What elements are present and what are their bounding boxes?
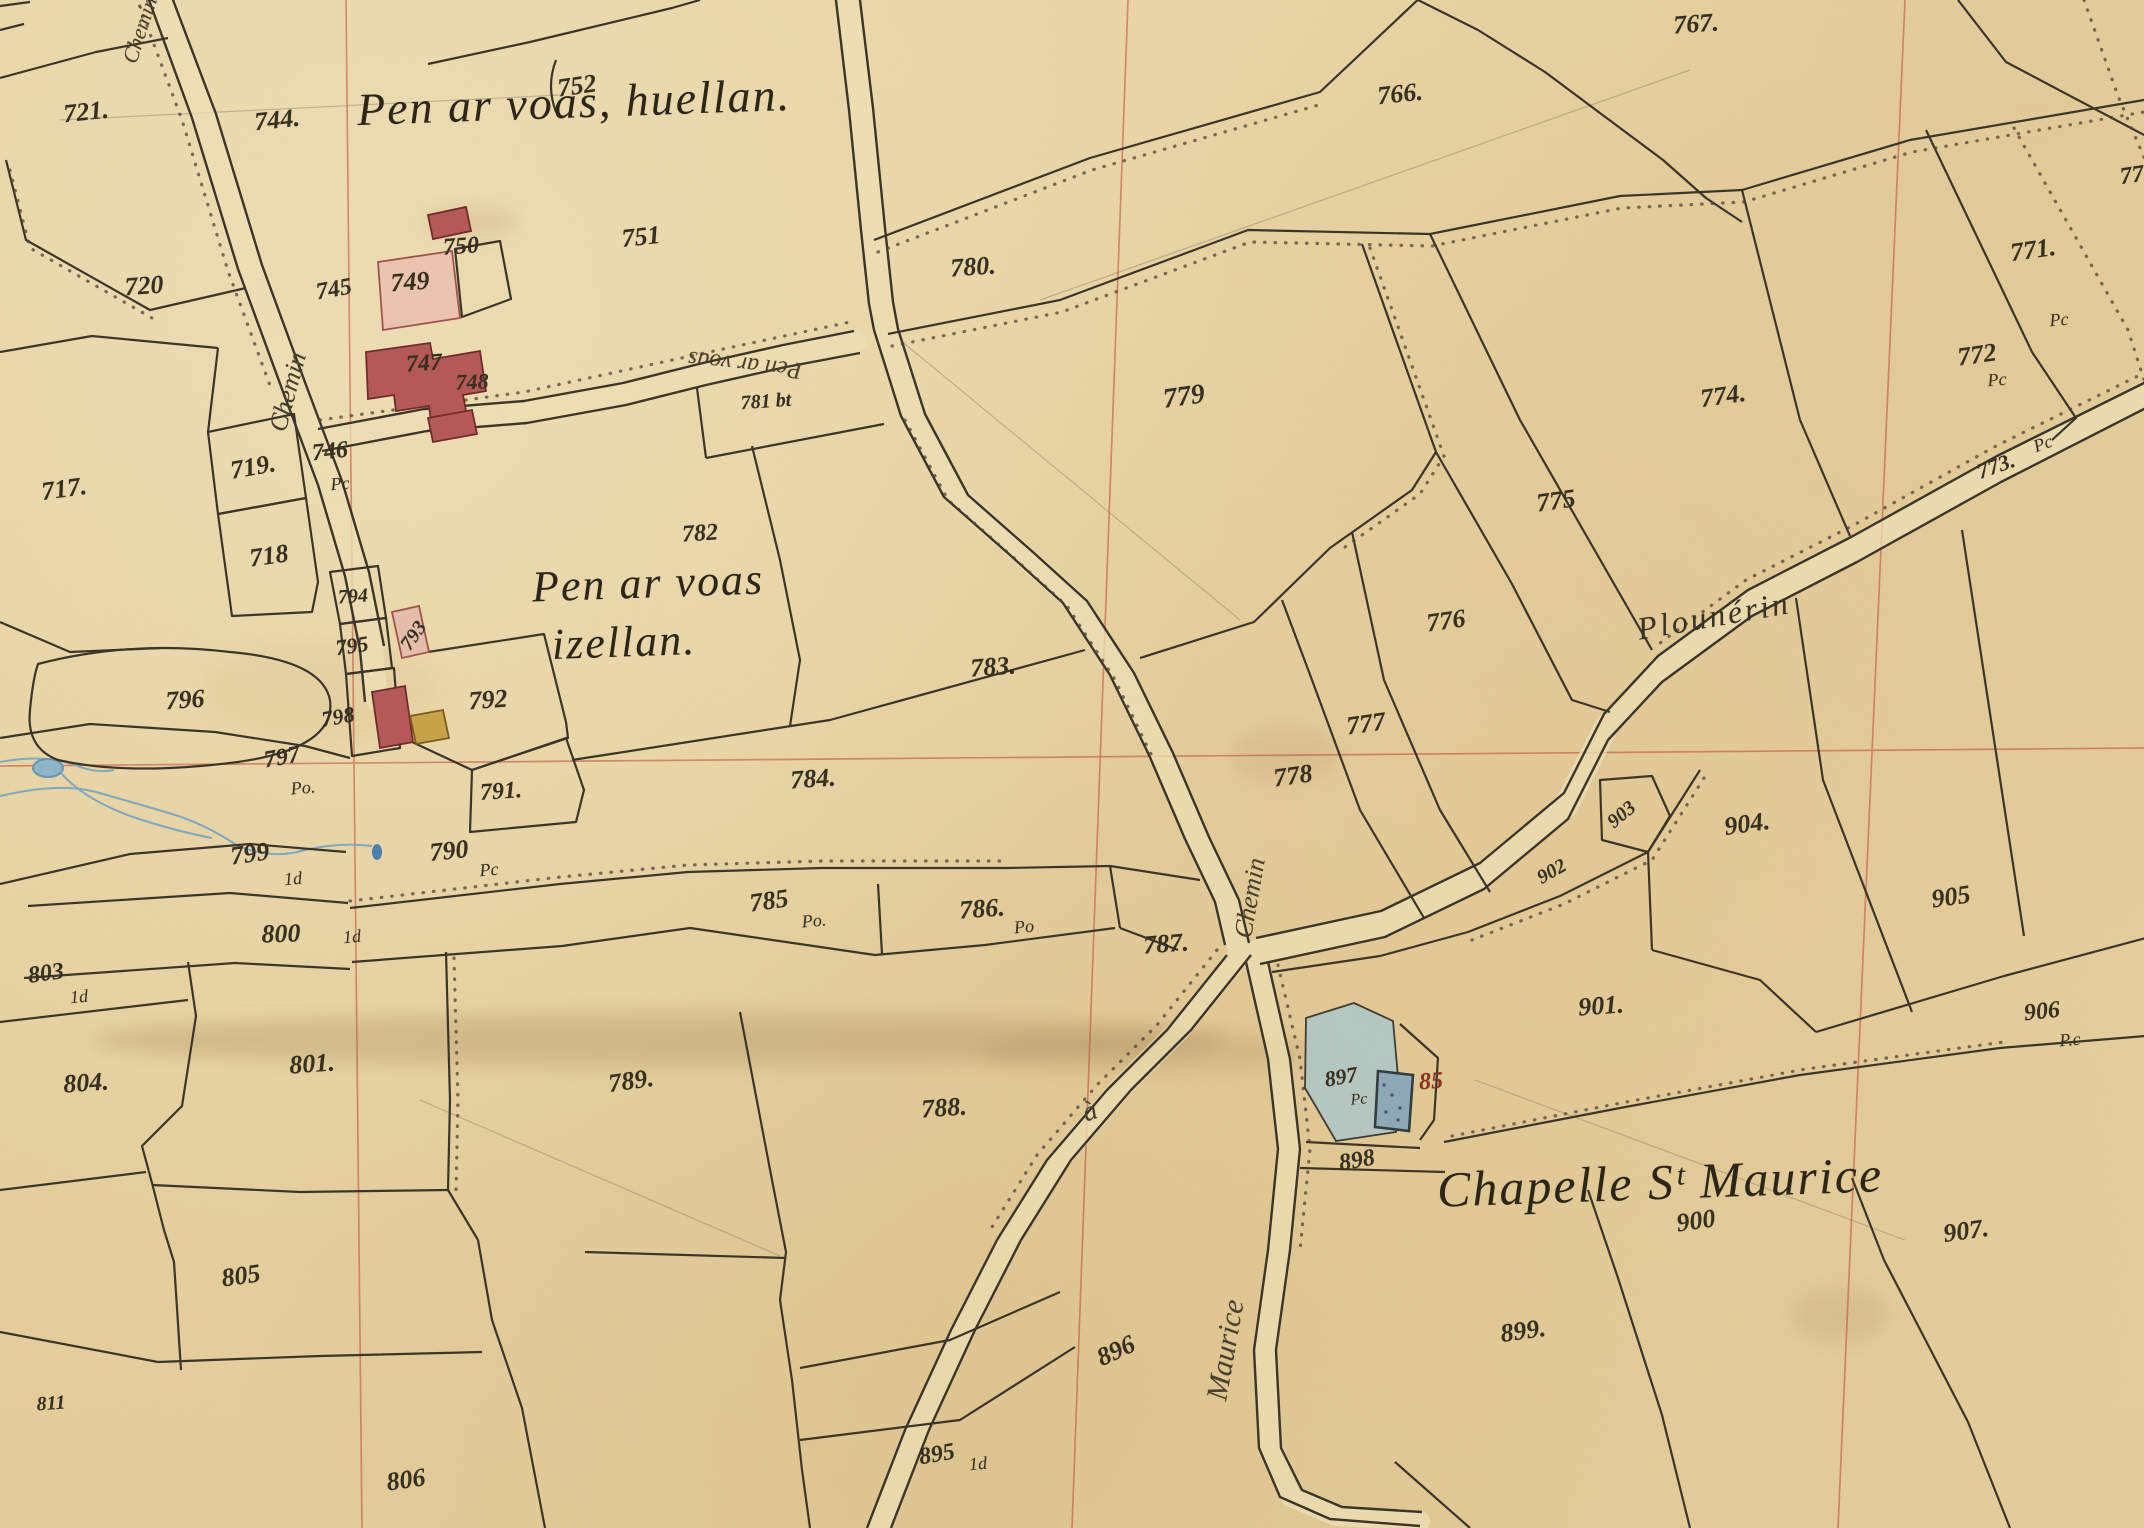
map-drawing bbox=[0, 0, 2144, 1528]
cadastral-map-canvas[interactable]: Pen ar voas, huellan.Pen ar voasizellan.… bbox=[0, 0, 2144, 1528]
paper-grain bbox=[0, 0, 2144, 1528]
